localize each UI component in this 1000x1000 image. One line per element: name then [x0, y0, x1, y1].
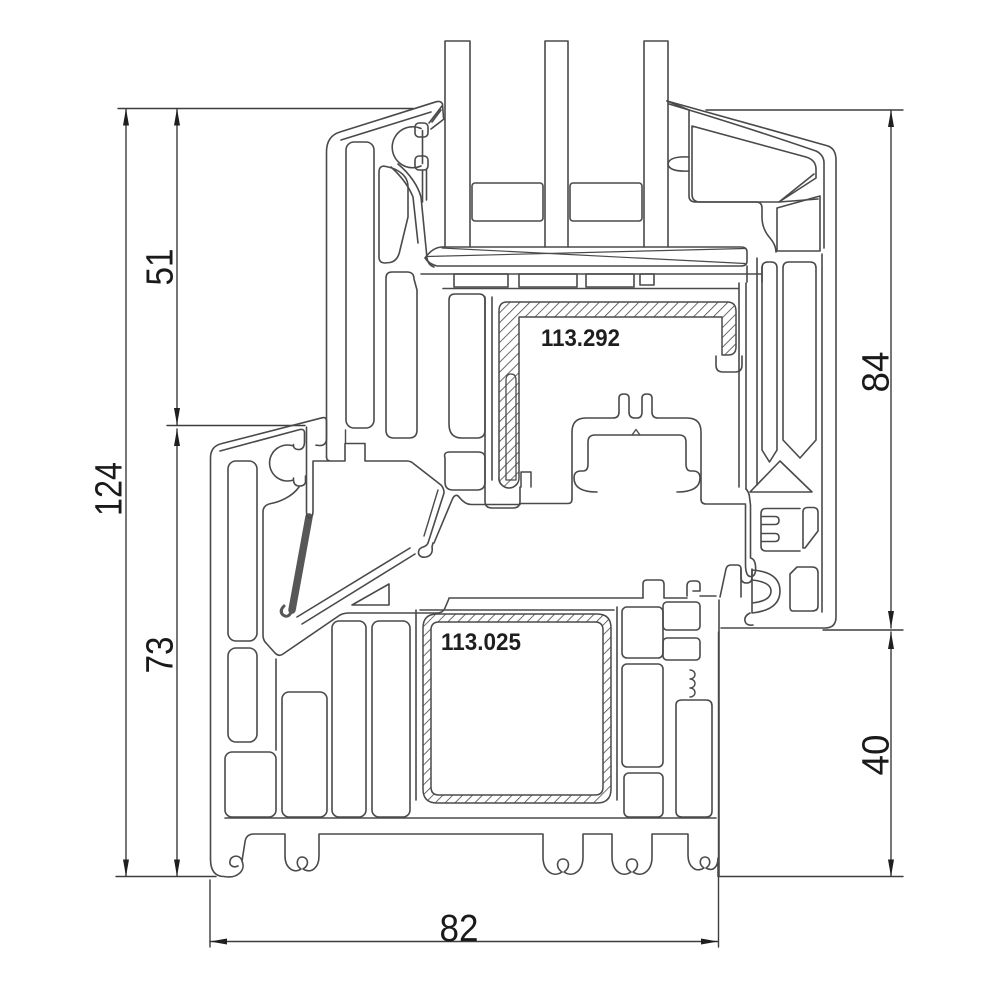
svg-text:40: 40 [856, 735, 898, 776]
svg-text:124: 124 [89, 462, 131, 516]
svg-text:84: 84 [856, 352, 898, 393]
svg-text:82: 82 [440, 908, 479, 950]
svg-text:113.292: 113.292 [541, 325, 620, 352]
svg-text:113.025: 113.025 [441, 629, 521, 656]
svg-text:51: 51 [140, 249, 182, 286]
svg-text:73: 73 [140, 637, 182, 674]
